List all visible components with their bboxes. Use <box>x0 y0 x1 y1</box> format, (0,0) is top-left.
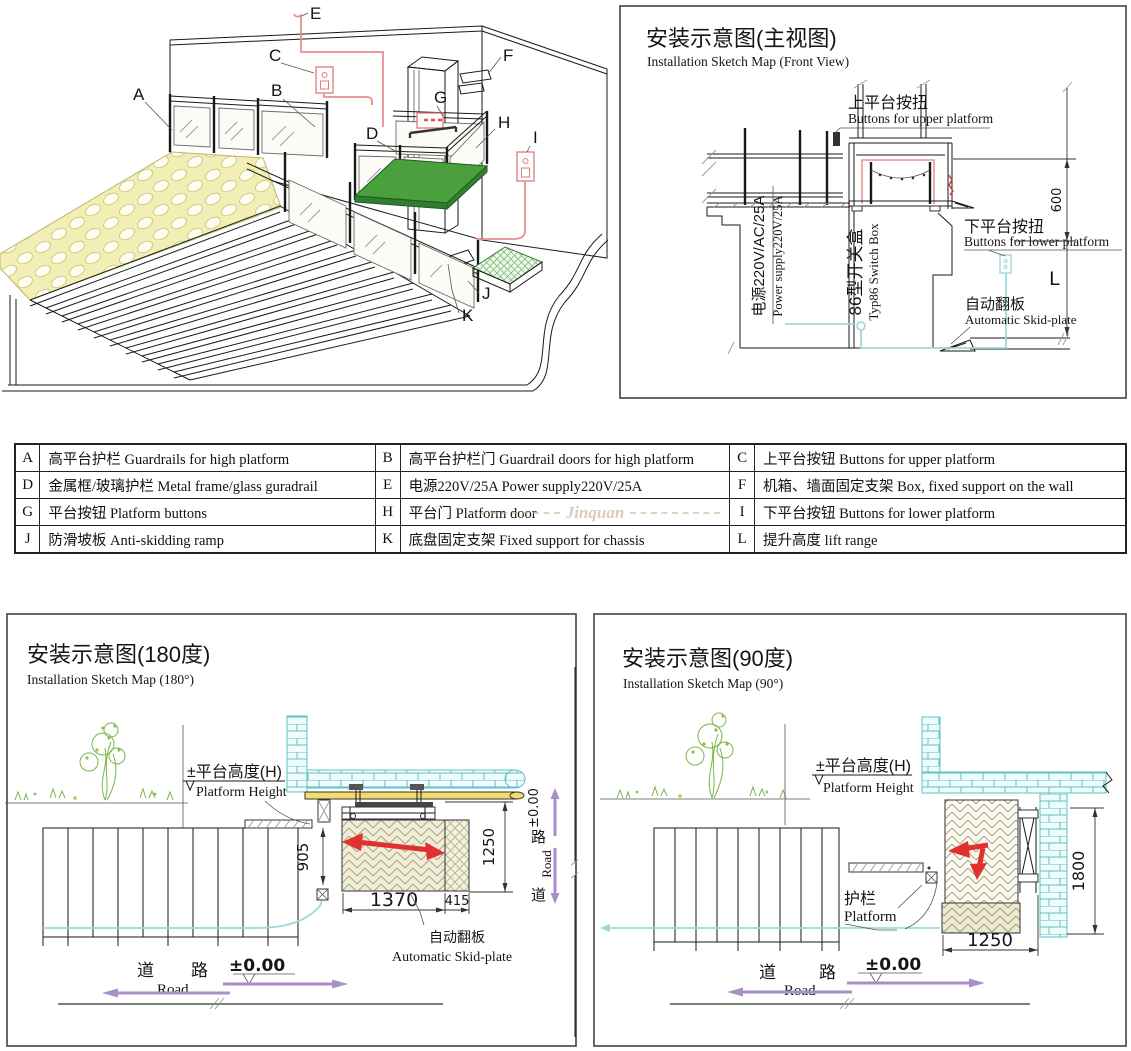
svg-text:1370: 1370 <box>370 889 418 911</box>
installation-diagram-sheet: A B C D E F G H I J K 安装示意图(主视图) Install… <box>0 0 1131 1051</box>
deg180-title-cn: 安装示意图(180度) <box>27 642 210 667</box>
svg-text:道: 道 <box>759 963 776 982</box>
part-key: F <box>730 472 755 499</box>
foundation <box>942 903 1020 933</box>
svg-text:1250: 1250 <box>480 828 498 866</box>
deg90-title-cn: 安装示意图(90度) <box>622 646 793 671</box>
part-desc: 底盘固定支架 Fixed support for chassis <box>400 526 730 554</box>
rail-label-en: Platform <box>844 909 897 925</box>
part-key: L <box>730 526 755 554</box>
callout-e: E <box>310 4 321 23</box>
svg-text:±0.00: ±0.00 <box>865 955 921 975</box>
part-desc: 高平台护栏 Guardrails for high platform <box>40 444 375 472</box>
power-label-cn: 电源220V/AC/25A <box>751 196 768 317</box>
svg-text:1800: 1800 <box>1069 851 1088 892</box>
skid-label-en: Automatic Skid-plate <box>965 312 1077 327</box>
callout-c: C <box>269 46 281 65</box>
upper-buttons-box <box>833 132 840 146</box>
svg-text:路: 路 <box>531 829 546 846</box>
part-desc: 平台按钮 Platform buttons <box>40 499 375 526</box>
part-desc: 高平台护栏门 Guardrail doors for high platform <box>400 444 730 472</box>
height-label-cn: ±平台高度(H) <box>816 757 911 775</box>
cobblestone-landing <box>0 152 281 300</box>
part-desc: 电源220V/25A Power supply220V/25A <box>400 472 730 499</box>
part-key: I <box>730 499 755 526</box>
svg-text:L: L <box>1049 268 1060 290</box>
svg-text:1250: 1250 <box>967 930 1013 951</box>
callout-f: F <box>503 46 513 65</box>
skid-label-en: Automatic Skid-plate <box>392 950 512 965</box>
isometric-drawing: A B C D E F G H I J K <box>0 0 612 436</box>
svg-text:905: 905 <box>294 843 312 872</box>
wall-bracket-icon <box>459 83 484 94</box>
part-key: G <box>15 499 40 526</box>
part-key: A <box>15 444 40 472</box>
table-row: D 金属框/玻璃护栏 Metal frame/glass guradrail E… <box>15 472 1126 499</box>
switchbox-label-en: Typ86 Switch Box <box>866 223 881 321</box>
svg-text:Road: Road <box>157 982 189 998</box>
part-desc: 平台门 Platform door <box>400 499 730 526</box>
part-key: D <box>15 472 40 499</box>
front-title-en: Installation Sketch Map (Front View) <box>647 54 849 69</box>
callout-h: H <box>498 113 510 132</box>
svg-text:600: 600 <box>1050 188 1065 213</box>
plank-wall <box>654 828 839 951</box>
svg-text:±0.00: ±0.00 <box>229 956 285 976</box>
sketch-90-panel: 安装示意图(90度) Installation Sketch Map (90°) <box>592 612 1128 1048</box>
table-row: J 防滑坡板 Anti-skidding ramp K 底盘固定支架 Fixed… <box>15 526 1126 554</box>
sketch-180-panel: 安装示意图(180度) Installation Sketch Map (180… <box>5 612 578 1048</box>
callout-d: D <box>366 124 378 143</box>
callout-g: G <box>434 88 447 107</box>
table-row: A 高平台护栏 Guardrails for high platform B 高… <box>15 444 1126 472</box>
svg-text:路: 路 <box>191 961 208 980</box>
parts-table: A 高平台护栏 Guardrails for high platform B 高… <box>14 443 1127 554</box>
part-desc: 金属框/玻璃护栏 Metal frame/glass guradrail <box>40 472 375 499</box>
front-view-panel: 安装示意图(主视图) Installation Sketch Map (Fron… <box>618 4 1128 400</box>
callout-a: A <box>133 85 145 104</box>
part-desc: 提升高度 lift range <box>755 526 1126 554</box>
skid-plate-zone <box>445 820 469 891</box>
lower-buttons-box <box>1000 255 1011 273</box>
high-platform-guardrail <box>170 94 327 158</box>
part-desc: 机箱、墙面固定支架 Box, fixed support on the wall <box>755 472 1126 499</box>
callout-i: I <box>533 128 538 147</box>
part-key: H <box>375 499 400 526</box>
part-desc: 下平台按钮 Buttons for lower platform <box>755 499 1126 526</box>
table-row: G 平台按钮 Platform buttons H 平台门 Platform d… <box>15 499 1126 526</box>
callout-j: J <box>482 284 491 303</box>
part-desc: 防滑坡板 Anti-skidding ramp <box>40 526 375 554</box>
wall-bracket-icon <box>460 70 491 83</box>
part-key: K <box>375 526 400 554</box>
svg-text:±0.00: ±0.00 <box>527 788 542 828</box>
part-desc: 上平台按钮 Buttons for upper platform <box>755 444 1126 472</box>
upper-buttons-label-cn: 上平台按扭 <box>848 94 928 112</box>
callout-k: K <box>462 306 474 325</box>
svg-text:道: 道 <box>531 887 546 904</box>
height-label-cn: ±平台高度(H) <box>187 763 282 781</box>
part-key: E <box>375 472 400 499</box>
svg-text:路: 路 <box>819 963 836 982</box>
skid-label-cn: 自动翻板 <box>429 929 485 945</box>
lower-buttons-label-en: Buttons for lower platform <box>964 234 1110 249</box>
brick-column <box>1040 793 1067 937</box>
svg-text:道: 道 <box>137 961 154 980</box>
deg180-title-en: Installation Sketch Map (180°) <box>27 672 194 687</box>
svg-text:415: 415 <box>445 894 470 909</box>
height-label-en: Platform Height <box>823 781 914 796</box>
svg-text:Road: Road <box>539 850 554 878</box>
front-title-cn: 安装示意图(主视图) <box>646 26 837 51</box>
part-key: C <box>730 444 755 472</box>
height-label-en: Platform Height <box>196 785 287 800</box>
wood-deck <box>305 792 517 799</box>
rail-label-cn: 护栏 <box>844 890 876 908</box>
deg90-title-en: Installation Sketch Map (90°) <box>623 676 783 691</box>
skid-label-cn: 自动翻板 <box>965 295 1025 313</box>
part-key: B <box>375 444 400 472</box>
part-key: J <box>15 526 40 554</box>
callout-b: B <box>271 81 282 100</box>
